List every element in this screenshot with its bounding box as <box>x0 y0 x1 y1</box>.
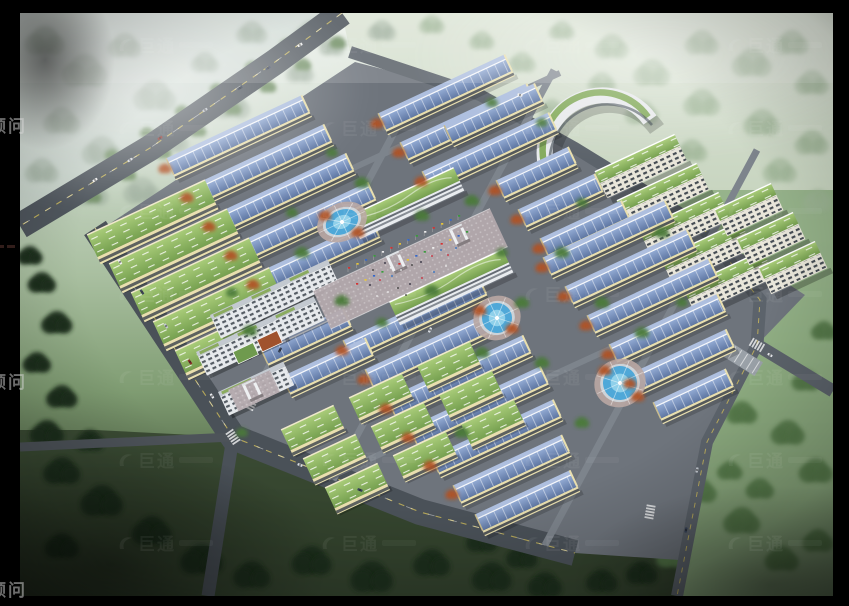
frame-right <box>833 0 849 606</box>
vignette-overlay <box>20 13 833 596</box>
frame-top <box>0 0 849 13</box>
rendering-frame: 巨通巨通巨通巨通巨通巨通巨通巨通巨通巨通巨通巨通巨通巨通巨通巨通巨通巨通巨通巨通… <box>0 0 849 606</box>
frame-left <box>0 0 20 606</box>
aerial-rendering <box>0 0 849 606</box>
frame-bottom <box>0 596 849 606</box>
